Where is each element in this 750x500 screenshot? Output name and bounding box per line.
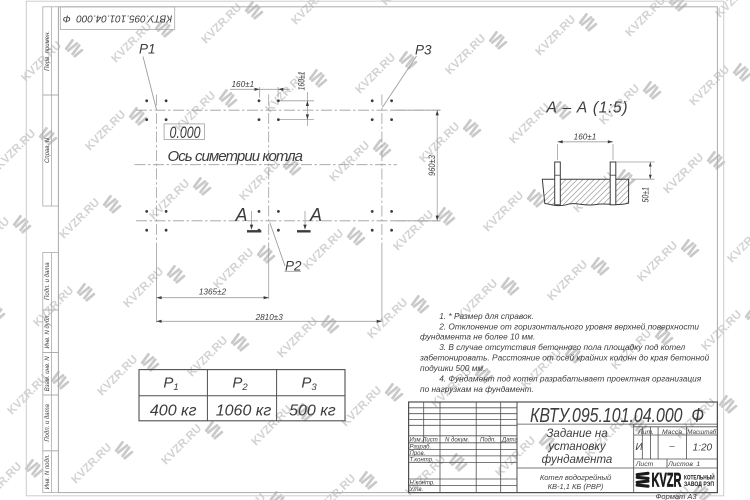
svg-text:KVZR.RU: KVZR.RU (276, 316, 321, 361)
svg-text:KVZR.RU: KVZR.RU (508, 102, 553, 147)
svg-text:1365±2: 1365±2 (199, 288, 227, 297)
svg-text:160±1: 160±1 (574, 132, 597, 141)
svg-text:Утв.: Утв. (409, 487, 424, 493)
svg-text:KVZR.RU: KVZR.RU (636, 240, 681, 285)
svg-text:Р1: Р1 (163, 375, 178, 394)
svg-text:KVZR.RU: KVZR.RU (714, 0, 750, 20)
svg-text:2810±3: 2810±3 (255, 313, 284, 322)
svg-text:KVZR.RU: KVZR.RU (328, 140, 373, 185)
svg-text:1:20: 1:20 (693, 442, 713, 453)
svg-text:500 кг: 500 кг (289, 403, 336, 420)
svg-text:Подп. и дата: Подп. и дата (45, 262, 51, 300)
svg-text:KVZR.RU: KVZR.RU (32, 285, 77, 330)
svg-text:А: А (309, 205, 322, 225)
svg-text:KVZR.RU: KVZR.RU (688, 64, 733, 109)
svg-text:ЗАВОД РЭП: ЗАВОД РЭП (684, 481, 714, 488)
svg-text:KVZR.RU: KVZR.RU (238, 159, 283, 204)
svg-text:Т.контр.: Т.контр. (410, 457, 434, 463)
svg-text:KVZR.RU: KVZR.RU (418, 121, 463, 166)
svg-text:KVZR.RU: KVZR.RU (96, 354, 141, 399)
svg-text:KVZR.RU: KVZR.RU (444, 33, 489, 78)
svg-text:KVZR.RU: KVZR.RU (624, 0, 669, 39)
svg-text:KVZR.RU: KVZR.RU (366, 297, 411, 342)
svg-text:Справ. N: Справ. N (45, 137, 51, 163)
svg-text:KVZR.RU: KVZR.RU (726, 221, 750, 266)
svg-text:Разраб.: Разраб. (410, 444, 432, 450)
svg-text:0.000: 0.000 (170, 124, 202, 142)
svg-text:KVZR.RU: KVZR.RU (84, 109, 129, 154)
svg-text:А – А (1:5): А – А (1:5) (546, 100, 628, 117)
svg-text:KVZR.RU: KVZR.RU (546, 259, 591, 304)
svg-text:KVZR: KVZR (652, 470, 682, 492)
svg-text:Инв. N дубл.: Инв. N дубл. (45, 314, 51, 349)
svg-text:KVZR.RU: KVZR.RU (534, 14, 579, 59)
svg-text:KVZR.RU: KVZR.RU (58, 197, 103, 242)
svg-text:KVZR.RU: KVZR.RU (122, 266, 167, 311)
svg-text:160±1: 160±1 (296, 71, 306, 90)
svg-text:Подп.: Подп. (480, 438, 496, 444)
svg-text:400 кг: 400 кг (150, 403, 197, 420)
svg-text:Ось симетрии котла: Ось симетрии котла (168, 148, 304, 165)
svg-text:Р1: Р1 (139, 41, 156, 56)
svg-text:2. Отклонение от горизонтально: 2. Отклонение от горизонтального уровня … (438, 321, 699, 331)
svg-text:Взам. инв. N: Взам. инв. N (45, 356, 51, 392)
svg-text:Лист: Лист (635, 461, 654, 468)
svg-text:KVZR.RU: KVZR.RU (482, 190, 527, 235)
svg-text:Масштаб: Масштаб (687, 428, 717, 436)
svg-text:Р3: Р3 (301, 375, 317, 394)
svg-text:Масса: Масса (662, 429, 682, 436)
svg-text:KVZR.RU: KVZR.RU (0, 461, 24, 500)
svg-text:Р2: Р2 (232, 375, 248, 394)
svg-text:забетонировать. Расстояние от: забетонировать. Расстояние от осей крайн… (419, 353, 710, 363)
svg-text:KVZR.RU: KVZR.RU (160, 423, 205, 468)
svg-text:Изм.Лист: Изм.Лист (410, 438, 438, 444)
svg-text:KVZR.RU: KVZR.RU (0, 128, 38, 173)
svg-text:KVZR.RU: KVZR.RU (340, 385, 385, 430)
svg-text:Листов: Листов (667, 461, 693, 468)
svg-text:KVZR.RU: KVZR.RU (290, 0, 335, 27)
svg-text:KVZR.RU: KVZR.RU (354, 52, 399, 97)
svg-text:Подп. и дата: Подп. и дата (45, 403, 51, 441)
svg-text:KVZR.RU: KVZR.RU (200, 2, 245, 47)
svg-text:Пров.: Пров. (410, 451, 426, 457)
svg-text:KVZR.RU: KVZR.RU (302, 228, 347, 273)
svg-text:50±1: 50±1 (640, 187, 650, 203)
svg-text:Задание на: Задание на (546, 428, 607, 440)
svg-text:KVZR.RU: KVZR.RU (212, 247, 257, 292)
svg-text:960±3: 960±3 (427, 154, 437, 176)
svg-text:И: И (635, 442, 643, 453)
svg-text:1060 кг: 1060 кг (216, 403, 272, 420)
svg-text:фундамента: фундамента (542, 454, 613, 466)
svg-text:Н.контр.: Н.контр. (410, 480, 435, 486)
svg-text:1. * Размер для справок.: 1. * Размер для справок. (439, 311, 534, 321)
svg-text:КВ-1,1 КБ (РВР): КВ-1,1 КБ (РВР) (548, 482, 604, 491)
svg-text:KVZR.RU: KVZR.RU (70, 442, 115, 487)
svg-text:KVZR.RU: KVZR.RU (662, 152, 707, 197)
svg-text:подушки 500 мм.: подушки 500 мм. (420, 363, 485, 373)
svg-text:1: 1 (696, 461, 700, 468)
svg-text:3. В случае отсутствия бетонно: 3. В случае отсутствия бетонного пола пл… (439, 342, 685, 352)
svg-text:КОТЕЛЬНЫЙ: КОТЕЛЬНЫЙ (684, 473, 715, 481)
svg-text:фундамента не более 10 мм.: фундамента не более 10 мм. (420, 331, 535, 341)
svg-text:4. Фундамент под котел разраба: 4. Фундамент под котел разрабатывает про… (439, 373, 702, 383)
svg-text:KVZR.RU: KVZR.RU (700, 309, 745, 354)
svg-text:Р3: Р3 (415, 42, 432, 57)
svg-text:Дата: Дата (501, 438, 518, 444)
svg-text:КВТУ.095.101.04.000 Ф: КВТУ.095.101.04.000 Ф (530, 405, 704, 427)
svg-text:KVZR.RU: KVZR.RU (0, 216, 12, 261)
svg-text:Перв. примен.: Перв. примен. (45, 31, 51, 71)
svg-text:KVZR.RU: KVZR.RU (392, 209, 437, 254)
svg-text:–: – (669, 441, 674, 451)
svg-text:KVZR.RU: KVZR.RU (148, 178, 193, 223)
svg-text:по нагрузкам на фундамент.: по нагрузкам на фундамент. (420, 384, 534, 394)
svg-text:А: А (235, 205, 248, 225)
svg-text:установку: установку (547, 441, 607, 453)
svg-text:Формат А3: Формат А3 (655, 492, 697, 500)
svg-text:Инв. N подл.: Инв. N подл. (45, 454, 51, 489)
svg-text:Лит.: Лит. (637, 429, 654, 436)
svg-text:КВТУ.095.101.04.000 Ф: КВТУ.095.101.04.000 Ф (63, 13, 172, 24)
svg-text:N докум.: N докум. (445, 438, 469, 444)
svg-text:160±1: 160±1 (232, 80, 255, 89)
svg-text:Котел водогрейный: Котел водогрейный (540, 473, 612, 482)
